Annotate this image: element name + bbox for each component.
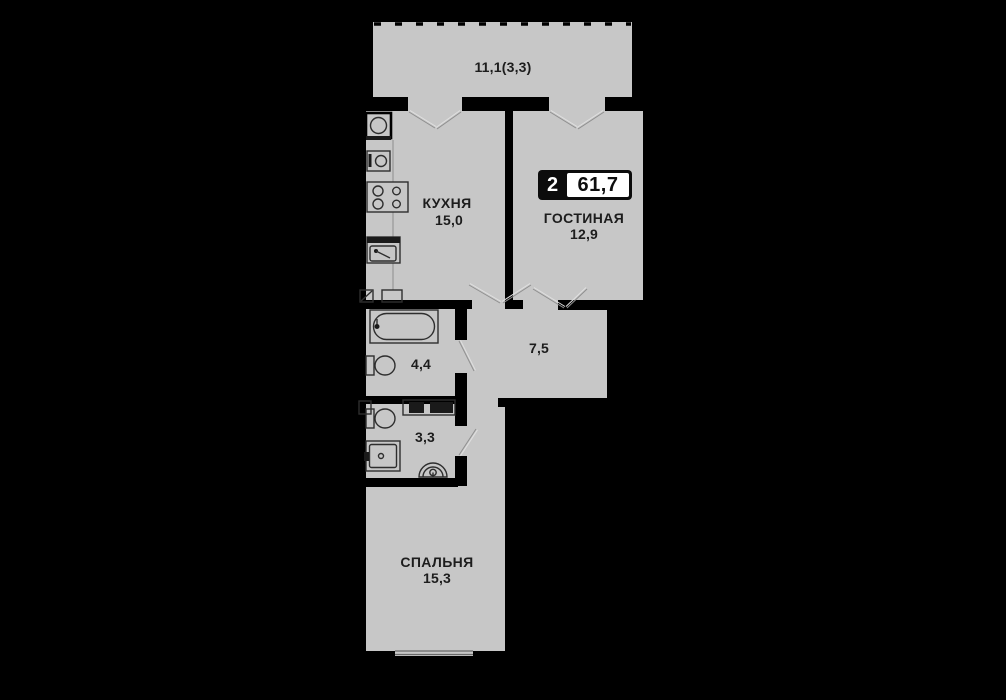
hallway-area-label: 7,5 — [529, 341, 549, 355]
floor-plan-canvas: 11,1(3,3) КУХНЯ 15,0 ГОСТИНАЯ 12,9 7,5 4… — [0, 0, 1006, 700]
bedroom-name-label: СПАЛЬНЯ — [400, 555, 473, 569]
kitchen-name-label: КУХНЯ — [422, 196, 471, 210]
living-room-area-label: 12,9 — [570, 227, 598, 241]
balcony-kitchen-opening — [408, 97, 462, 111]
corridor-floor — [467, 398, 505, 487]
kitchen-area-label: 15,0 — [435, 213, 463, 227]
floor-plan-drawing — [0, 0, 1006, 700]
living-room-name-label: ГОСТИНАЯ — [544, 211, 625, 225]
bathroom-area-label: 4,4 — [411, 357, 431, 371]
apartment-badge: 2 61,7 — [538, 170, 632, 200]
living-room-floor — [513, 111, 643, 300]
total-area-badge: 61,7 — [567, 173, 629, 197]
balcony-area-label: 11,1(3,3) — [474, 60, 531, 74]
balcony-living-opening — [549, 97, 605, 111]
bedroom-area-label: 15,3 — [423, 571, 451, 585]
room-count-badge: 2 — [538, 174, 567, 197]
wc-area-label: 3,3 — [415, 430, 435, 444]
bathroom-floor — [366, 309, 455, 396]
